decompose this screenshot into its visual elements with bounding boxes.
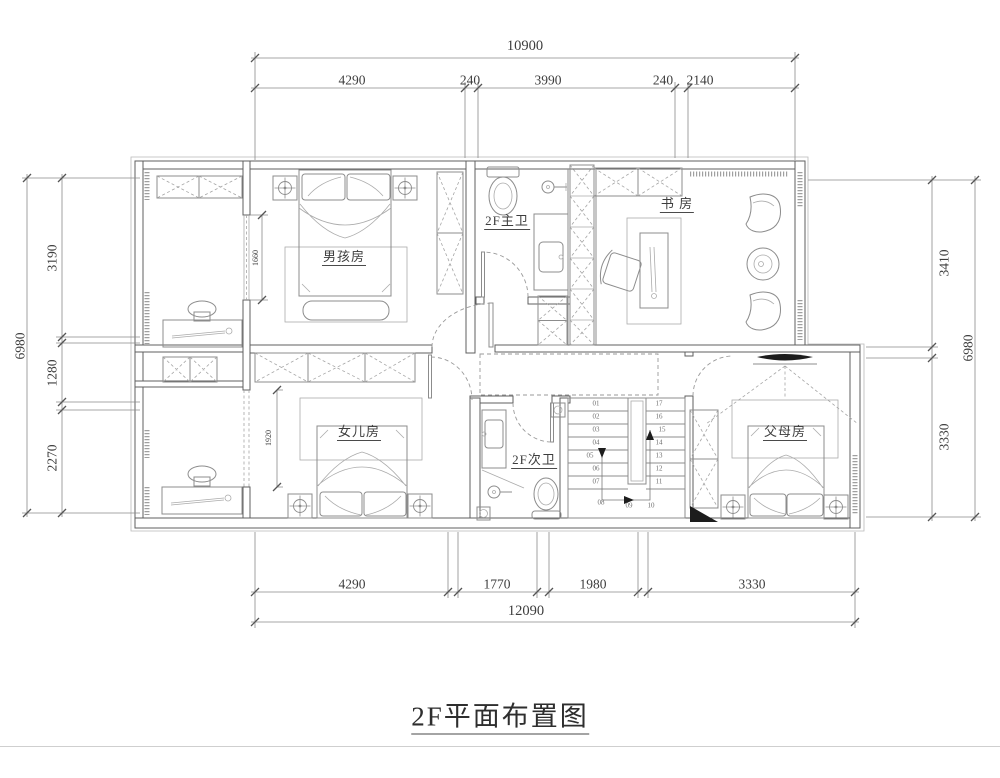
dim-right-seg1: 3410 <box>937 250 951 277</box>
room-label-second-bath: 2F次卫 <box>511 453 557 469</box>
stair-step-label: 15 <box>659 427 666 434</box>
dim-top-seg3: 3990 <box>535 73 562 87</box>
room-label-boy: 男孩房 <box>322 250 366 266</box>
tv-icon <box>757 354 813 361</box>
stair-step-label: 14 <box>656 440 663 447</box>
room-label-parents: 父母房 <box>763 425 807 441</box>
room-label-daughter: 女儿房 <box>337 425 381 441</box>
dim-right-overall: 6980 <box>961 335 975 362</box>
daughter-room-opening <box>244 390 249 487</box>
dim-top-seg5: 2140 <box>687 73 714 87</box>
stair-step-label: 17 <box>656 401 663 408</box>
dimension-lines <box>22 52 981 628</box>
floor-plan-canvas <box>0 0 1000 778</box>
stair-arrow-down <box>598 448 606 458</box>
drawing-title: 2F平面布置图 <box>411 704 589 735</box>
stair-step-label: 12 <box>656 466 663 473</box>
room-label-study: 书 房 <box>660 197 694 213</box>
stair-arrow-up <box>646 430 654 440</box>
master-bath-fixtures <box>482 167 569 345</box>
ceiling-light <box>408 494 432 518</box>
stair-step-label: 09 <box>626 503 633 510</box>
dim-top-seg4: 240 <box>653 73 673 87</box>
dim-right-seg2: 3330 <box>937 424 951 451</box>
dim-bottom-overall: 12090 <box>508 604 544 619</box>
ceiling-light <box>393 176 417 200</box>
dim-left-overall: 6980 <box>13 333 27 360</box>
title-block-rule <box>0 746 1000 747</box>
dim-boy-window: 1660 <box>252 250 260 266</box>
stair-step-label: 13 <box>656 453 663 460</box>
dim-bottom-seg2: 1770 <box>484 577 511 591</box>
dim-bottom-seg3: 1980 <box>580 577 607 591</box>
dim-left-seg1: 3190 <box>45 245 59 272</box>
dim-bottom-seg1: 4290 <box>339 577 366 591</box>
ceiling-light <box>721 495 745 519</box>
dim-top-seg1: 4290 <box>339 73 366 87</box>
floor-plan-page: 10900 4290 240 3990 240 2140 4290 1770 1… <box>0 0 1000 778</box>
stair-step-label: 07 <box>593 479 600 486</box>
stair-step-label: 03 <box>593 427 600 434</box>
stair-step-label: 11 <box>656 479 663 486</box>
dim-daughter-opening: 1920 <box>265 430 273 446</box>
ceiling-light <box>288 494 312 518</box>
stair-step-label: 06 <box>593 466 600 473</box>
stair-step-label: 04 <box>593 440 600 447</box>
stair-step-label: 05 <box>587 453 594 460</box>
study-furniture <box>596 194 780 330</box>
ceiling-light <box>273 176 297 200</box>
room-label-master-bath: 2F主卫 <box>484 214 530 230</box>
dim-left-seg2: 1280 <box>45 360 59 387</box>
dim-left-seg3: 2270 <box>45 445 59 472</box>
stair-step-label: 02 <box>593 414 600 421</box>
dim-top-overall: 10900 <box>507 39 543 54</box>
stair-step-label: 01 <box>593 401 600 408</box>
boy-room-window <box>244 215 249 300</box>
stair-step-label: 16 <box>656 414 663 421</box>
boy-room-furniture <box>273 170 463 322</box>
stair-step-label: 08 <box>598 500 605 507</box>
ceiling-light <box>824 495 848 519</box>
closet-cabinets <box>570 165 682 345</box>
stair-step-label: 10 <box>648 503 655 510</box>
dim-bottom-seg4: 3330 <box>739 577 766 591</box>
dim-top-seg2: 240 <box>460 73 480 87</box>
